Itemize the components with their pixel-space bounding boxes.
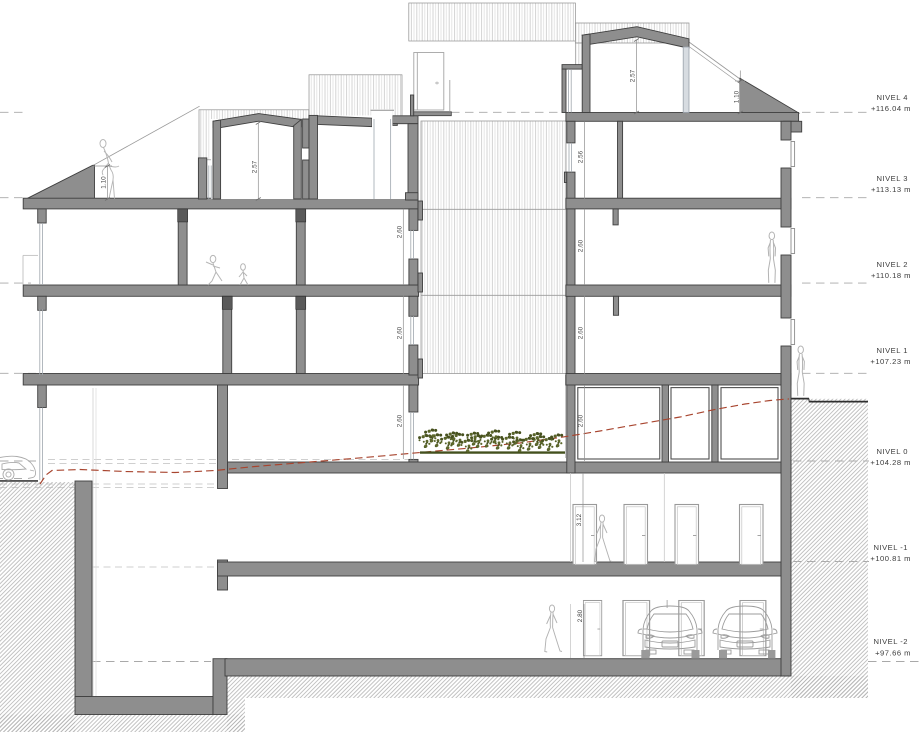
svg-text:1.10: 1.10 xyxy=(734,90,741,103)
svg-text:2.60: 2.60 xyxy=(397,326,404,339)
svg-text:+107.23 m: +107.23 m xyxy=(870,357,911,366)
svg-text:2.80: 2.80 xyxy=(577,609,584,622)
svg-text:+100.81 m: +100.81 m xyxy=(870,554,911,563)
svg-text:2.60: 2.60 xyxy=(578,326,585,339)
svg-text:2.56: 2.56 xyxy=(578,150,585,163)
svg-text:2.57: 2.57 xyxy=(252,160,259,173)
svg-text:+116.04 m: +116.04 m xyxy=(871,104,911,113)
svg-text:2.60: 2.60 xyxy=(397,225,404,238)
svg-text:NIVEL 2: NIVEL 2 xyxy=(877,260,909,269)
svg-text:+113.13 m: +113.13 m xyxy=(871,185,911,194)
svg-text:NIVEL -2: NIVEL -2 xyxy=(873,637,908,646)
svg-text:NIVEL 1: NIVEL 1 xyxy=(877,346,909,355)
svg-text:+104.28 m: +104.28 m xyxy=(870,458,911,467)
svg-text:NIVEL 4: NIVEL 4 xyxy=(877,93,909,102)
svg-text:NIVEL 0: NIVEL 0 xyxy=(877,447,909,456)
svg-text:+97.66 m: +97.66 m xyxy=(875,649,911,658)
svg-text:2.57: 2.57 xyxy=(630,69,637,82)
svg-text:+110.18 m: +110.18 m xyxy=(871,271,911,280)
svg-text:1.10: 1.10 xyxy=(101,176,108,189)
svg-text:2.60: 2.60 xyxy=(578,239,585,252)
svg-text:NIVEL 3: NIVEL 3 xyxy=(877,174,909,183)
svg-text:2.60: 2.60 xyxy=(578,414,585,427)
svg-text:3.12: 3.12 xyxy=(576,513,583,526)
svg-text:NIVEL -1: NIVEL -1 xyxy=(873,543,908,552)
svg-text:2.60: 2.60 xyxy=(397,414,404,427)
